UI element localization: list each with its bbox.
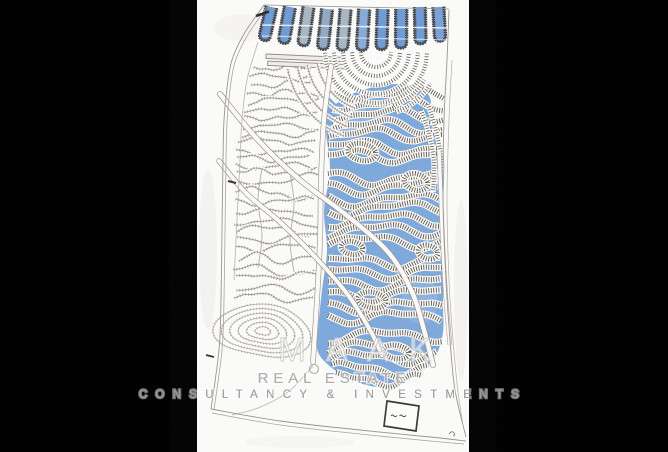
svg-text:CONSULTANCY & INVESTMENTS: CONSULTANCY & INVESTMENTS [139, 389, 527, 401]
svg-text:K: K [409, 331, 431, 368]
svg-text:A: A [367, 331, 389, 368]
svg-text:A: A [326, 331, 348, 368]
svg-text:REAL ESTATE: REAL ESTATE [258, 370, 411, 387]
svg-text:M: M [278, 331, 306, 368]
